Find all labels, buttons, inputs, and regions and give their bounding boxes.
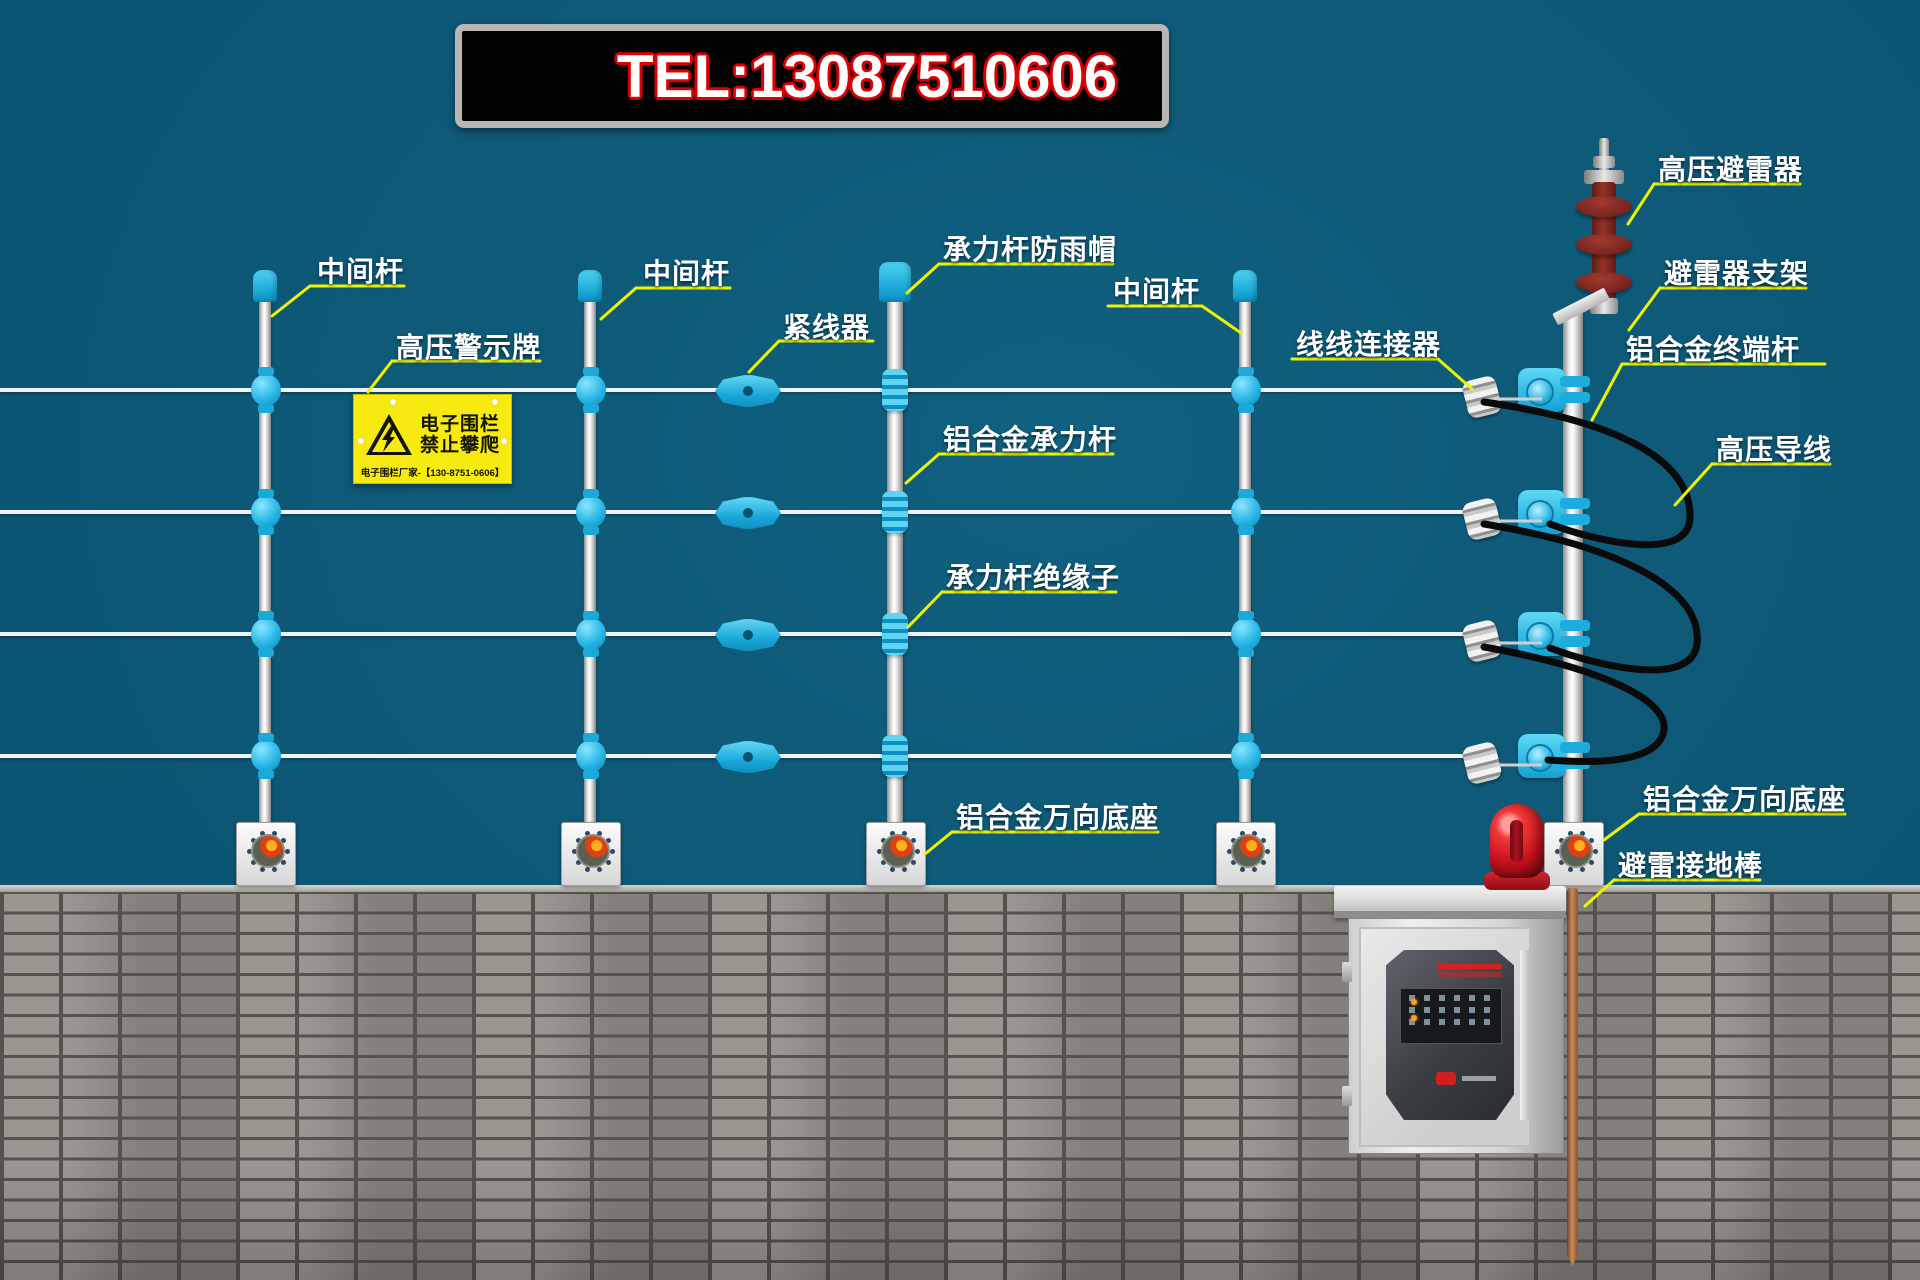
universal-base [1216,822,1276,886]
callout-wire-tensioner: 紧线器 [783,306,870,346]
callout-mid-pole-1: 中间杆 [317,250,404,290]
pole-insulator [251,374,281,406]
clamp-tab [1560,392,1590,403]
wire-stub [1494,399,1542,765]
universal-base [1544,822,1604,886]
callout-bearing-pole: 铝合金承力杆 [943,418,1117,458]
pole-cap [1233,270,1257,302]
pole-insulator [251,618,281,650]
pole-insulator [576,496,606,528]
pole-insulator [576,374,606,406]
pole-cap [253,270,277,302]
clamp-tab [1560,376,1590,387]
clamp-tab [1560,742,1590,753]
callout-mid-pole-3: 中间杆 [1113,270,1200,310]
door-hinge [1342,1086,1352,1106]
bearing-pole-insulator [882,613,908,655]
arrester-skirt [1576,196,1632,217]
pole-insulator [1231,740,1261,772]
wire-connector-spool [1461,618,1503,663]
clamp-tab [1560,620,1590,631]
rain-cap [879,262,911,302]
brick-wall [0,885,1920,1280]
pole-cap [578,270,602,302]
pole-insulator [251,740,281,772]
sign-hole [390,399,396,405]
electric-fence-diagram: 电子围栏禁止攀爬 电子围栏厂家-【130-8751-0606】 [0,0,1920,1280]
hv-warning-sign: 电子围栏禁止攀爬 电子围栏厂家-【130-8751-0606】 [353,394,512,484]
callout-wire-connector: 线线连接器 [1296,323,1441,363]
terminal-clamp [1518,490,1566,534]
pole-insulator [1231,496,1261,528]
wire-connector-spool [1461,496,1503,541]
wire-tensioner [715,495,781,531]
universal-base [866,822,926,886]
callout-rain-cap: 承力杆防雨帽 [943,228,1117,268]
control-box-canopy [1334,886,1566,918]
clamp-tab [1560,636,1590,647]
callout-arrester: 高压避雷器 [1658,148,1803,188]
terminal-clamp [1518,734,1566,778]
sign-hole [358,438,364,444]
door-latch [1520,950,1529,1120]
clamp-tab [1560,758,1590,769]
wire-tensioner [715,373,781,409]
wire-connector-spool [1461,374,1503,419]
alarm-beacon [1490,804,1544,878]
bearing-pole-insulator [882,491,908,533]
panel-display [1400,988,1502,1044]
callout-bearing-insulator: 承力杆绝缘子 [946,556,1120,596]
callout-ground-rod: 避雷接地棒 [1618,844,1763,884]
sign-footer: 电子围栏厂家-【130-8751-0606】 [354,465,511,483]
phone-banner: TEL:13087510606 [455,24,1169,128]
callout-hv-conductor: 高压导线 [1716,428,1832,468]
wire-connector-spool [1461,740,1503,785]
sign-text: 电子围栏禁止攀爬 [420,414,500,457]
hv-conductor-cable [1484,402,1697,762]
controller-panel [1386,950,1514,1120]
sign-hole [492,399,498,405]
terminal-clamp [1518,612,1566,656]
phone-number: TEL:13087510606 [617,42,1117,111]
pole-insulator [1231,618,1261,650]
pole-insulator [576,740,606,772]
callout-mid-pole-2: 中间杆 [643,252,730,292]
pole-insulator [1231,374,1261,406]
callout-base-right: 铝合金万向底座 [1643,778,1846,818]
callout-base-left: 铝合金万向底座 [956,796,1159,836]
door-hinge [1342,962,1352,982]
terminal-clamp [1518,368,1566,412]
panel-logo [1436,1072,1456,1085]
callout-hv-warning-sign: 高压警示牌 [396,326,541,366]
clamp-tab [1560,498,1590,509]
arrester-nut [1593,156,1615,168]
wall-shading [0,1160,1920,1280]
wall-top-edge [0,885,1920,892]
pole-insulator [251,496,281,528]
callout-terminal-pole: 铝合金终端杆 [1626,328,1800,368]
sign-hole [501,438,507,444]
lightning-ground-rod [1567,888,1578,1266]
wire-tensioner [715,617,781,653]
arrester-skirt [1576,234,1632,255]
universal-base [236,822,296,886]
bearing-pole-insulator [882,735,908,777]
wire-tensioner [715,739,781,775]
panel-brand-mark [1438,964,1502,969]
callout-arrester-bracket: 避雷器支架 [1664,252,1809,292]
pole-insulator [576,618,606,650]
electric-shock-warning-icon [365,413,413,457]
universal-base [561,822,621,886]
clamp-tab [1560,514,1590,525]
bearing-pole-insulator [882,369,908,411]
